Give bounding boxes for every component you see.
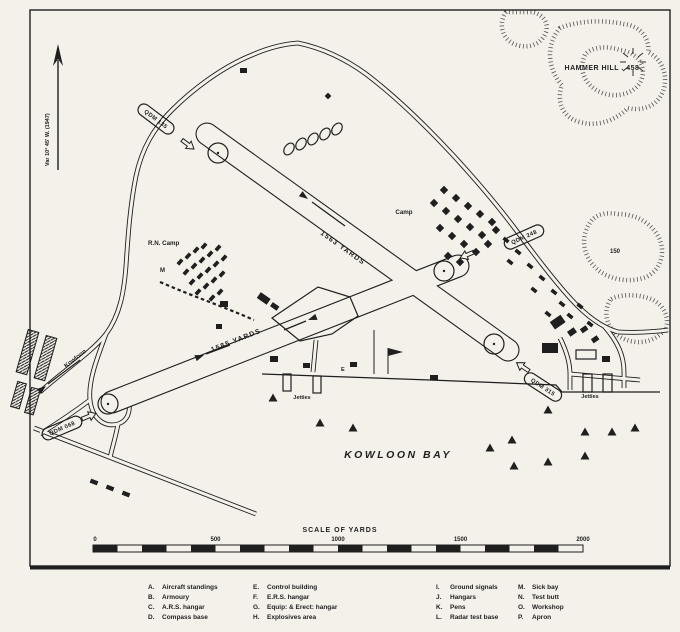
camp-label: Camp [395, 209, 412, 216]
legend-label: E.R.S. hangar [267, 594, 310, 601]
variation-label: Var 10° 45' W. (1947) [45, 113, 51, 166]
legend-label: Apron [532, 614, 551, 621]
marker-m-label: M [160, 268, 165, 274]
legend-label: Radar test base [450, 614, 499, 621]
scale-bar-segments [93, 545, 583, 552]
scale-bar-title: SCALE OF YARDS [302, 527, 377, 534]
scale-tick: 1500 [454, 537, 468, 543]
jetties-left-label: Jetties [293, 395, 310, 401]
legend-label: Workshop [532, 604, 564, 611]
legend-key: K. [436, 604, 443, 611]
legend-label: Sick bay [532, 584, 559, 591]
legend-key: P. [518, 614, 523, 621]
legend-key: B. [148, 594, 155, 601]
legend-key: N. [518, 594, 525, 601]
legend-key: I. [436, 584, 440, 591]
kowloon-bay-label: KOWLOON BAY [344, 449, 452, 461]
legend-label: Control building [267, 584, 317, 591]
legend-label: A.R.S. hangar [162, 604, 205, 611]
legend-label: Equip: & Erect: hangar [267, 604, 338, 611]
legend-key: A. [148, 584, 155, 591]
legend-label: Pens [450, 604, 466, 611]
marker-e-label: E [341, 367, 345, 373]
legend-label: Ground signals [450, 584, 498, 591]
legend-label: Compass base [162, 614, 208, 621]
legend-label: Explosives area [267, 614, 317, 621]
legend-label: Aircraft standings [162, 584, 218, 591]
legend-key: G. [253, 604, 260, 611]
legend-key: H. [253, 614, 260, 621]
legend-key: D. [148, 614, 155, 621]
legend-key: E. [253, 584, 259, 591]
hammer-hill-label: HAMMER HILL . 458 [565, 65, 640, 72]
legend-key: J. [436, 594, 442, 601]
legend-label: Hangars [450, 594, 476, 601]
scale-tick: 500 [210, 537, 221, 543]
scale-tick: 1000 [331, 537, 345, 543]
legend-key: L. [436, 614, 442, 621]
legend-label: Armoury [162, 594, 189, 601]
legend-key: M. [518, 584, 525, 591]
rn-camp-label: R.N. Camp [148, 240, 180, 247]
airfield-map: 1563 YARDS 1585 YARDS [0, 0, 680, 632]
legend-key: O. [518, 604, 525, 611]
legend-label: Test butt [532, 594, 560, 601]
contour-150-label: 150 [610, 249, 621, 255]
legend-key: C. [148, 604, 155, 611]
scale-tick: 2000 [576, 537, 590, 543]
jetties-right-label: Jetties [581, 394, 598, 400]
legend-key: F. [253, 594, 258, 601]
